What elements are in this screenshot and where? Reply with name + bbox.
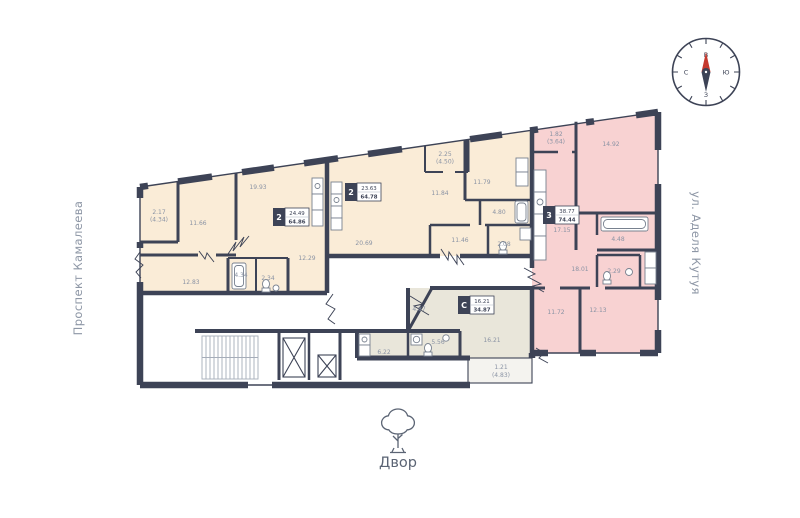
tree-base: [390, 448, 406, 453]
courtyard-label: Двор: [379, 455, 417, 471]
sink-icon: [626, 269, 633, 276]
room-area-label: 17.15: [553, 227, 570, 234]
floor-plan-canvas: 2.17 (4.34) 11.66 19.93 12.29 4.34 2.34 …: [0, 0, 800, 518]
living-area: 23.63: [361, 186, 376, 192]
balcony-area-label: 2.25: [438, 151, 452, 158]
street-label-left: Проспект Камалеева: [71, 201, 85, 336]
room-area-label: 4.80: [492, 209, 506, 216]
apartment-number: С: [461, 301, 467, 310]
room-area-label: 14.92: [602, 141, 619, 148]
total-area: 64.86: [288, 220, 305, 226]
balcony-area-label: 1.82: [549, 131, 563, 138]
apartment-number: 2: [276, 213, 282, 222]
apartment-number: 2: [348, 188, 354, 197]
room-area-label: 11.84: [431, 190, 448, 197]
apartment-number: 3: [546, 211, 552, 220]
floor-plan-page: 2.17 (4.34) 11.66 19.93 12.29 4.34 2.34 …: [0, 0, 800, 518]
room-area-label: 12.83: [182, 279, 199, 286]
room-area-label: 19.93: [249, 184, 266, 191]
total-area: 34.87: [473, 308, 490, 314]
courtyard-marker: [382, 409, 415, 453]
room-area-label: 2.08: [497, 241, 511, 248]
room-area-label: 4.87: [412, 306, 426, 313]
balcony-area-label: 1.21: [494, 364, 508, 371]
apartment-right-region[interactable]: [532, 112, 658, 353]
compass-label-right: Ю: [722, 69, 729, 77]
sink-icon: [273, 285, 279, 291]
street-label-right: ул. Аделя Кутуя: [689, 191, 703, 295]
room-area-label: 12.29: [298, 255, 315, 262]
stair-steps: [202, 336, 258, 379]
wardrobe-icon: [516, 158, 528, 172]
washer-icon: [411, 334, 422, 345]
room-area-label: 11.79: [473, 179, 490, 186]
tree-trunk: [393, 434, 403, 448]
balcony-full-area-label: (3.64): [547, 139, 565, 146]
balcony-area-label: 2.17: [152, 209, 166, 216]
total-area: 74.44: [558, 218, 575, 224]
living-area: 16.21: [474, 299, 489, 305]
apartment-left-badge[interactable]: 2 24.49 64.86: [273, 208, 309, 226]
wardrobe-icon: [645, 252, 656, 268]
room-area-label: 4.48: [611, 236, 625, 243]
room-area-label: 4.34: [234, 272, 248, 279]
room-area-label: 5.56: [431, 339, 445, 346]
living-area: 24.49: [289, 211, 305, 217]
washer-icon: [520, 228, 531, 240]
room-area-label: 2.34: [261, 275, 275, 282]
compass-rose: В Ю З С: [673, 39, 740, 106]
room-area-label: 11.46: [451, 237, 468, 244]
balcony-full-area-label: (4.83): [492, 372, 510, 379]
apartment-right-badge[interactable]: 3 38.77 74.44: [543, 206, 579, 224]
compass-label-bottom: З: [704, 91, 708, 99]
room-area-label: 6.22: [377, 349, 391, 356]
room-area-label: 2.29: [607, 268, 621, 275]
room-area-label: 18.01: [571, 266, 588, 273]
balcony-full-area-label: (4.50): [436, 159, 454, 166]
room-area-label: 16.21: [483, 337, 500, 344]
balcony-full-area-label: (4.34): [150, 217, 168, 224]
total-area: 64.78: [360, 195, 377, 201]
room-area-label: 12.13: [589, 307, 606, 314]
room-area-label: 11.66: [189, 220, 206, 227]
apartment-middle-badge[interactable]: 2 23.63 64.78: [345, 183, 381, 201]
room-area-label: 20.69: [355, 240, 372, 247]
living-area: 38.77: [559, 209, 574, 215]
compass-label-left: С: [684, 69, 689, 77]
apartment-studio-badge[interactable]: С 16.21 34.87: [458, 296, 494, 314]
tree-icon: [382, 409, 415, 434]
room-area-label: 11.72: [547, 309, 564, 316]
